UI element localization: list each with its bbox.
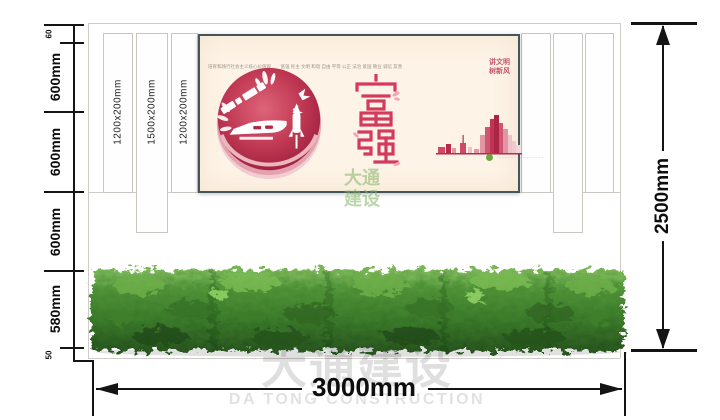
dim-label-60: 60 (45, 30, 54, 39)
watermark-tile: 大通 建设 (344, 168, 380, 210)
wall-top-edge (88, 23, 620, 24)
watermark-tile-line2: 建设 (344, 189, 380, 210)
bottom-dimension-line-right (428, 388, 622, 390)
arrow-left-icon (96, 383, 118, 395)
dim-label-50: 50 (45, 351, 54, 360)
credit-text: ······························· (497, 155, 543, 160)
tick-mark (44, 24, 84, 26)
signage-wall-drawing: 1200x200mm 1500x200mm 1200x200mm 培育和践行社会… (0, 0, 720, 420)
slat-size-label-1: 1200x200mm (113, 79, 124, 145)
credit-dot-icon (486, 154, 493, 161)
left-extension-line (92, 360, 94, 416)
tick-mark (60, 42, 84, 44)
arrow-down-icon (656, 329, 670, 349)
arrow-up-icon (656, 25, 670, 45)
dim-label-3000: 3000mm (312, 372, 416, 403)
bottom-dimension-line-left (96, 388, 302, 390)
slat-right-3 (585, 33, 614, 193)
right-dim-cap-bottom (631, 349, 697, 352)
dim-label-2500: 2500mm (650, 151, 676, 241)
tick-mark (44, 191, 84, 193)
dim-label-580: 580mm (47, 285, 63, 333)
left-dimension-corner (73, 360, 94, 362)
slogan-text: 讲文明 树新风 (489, 58, 510, 76)
watermark-tile-line1: 大通 (344, 168, 380, 189)
slat-right-2 (553, 33, 583, 233)
dim-label-600-1: 600mm (47, 53, 63, 101)
right-extension-line (624, 352, 626, 416)
arrow-right-icon (600, 383, 622, 395)
slat-size-label-3: 1200x200mm (179, 79, 190, 145)
tick-mark (44, 270, 84, 272)
slat-right-1 (521, 33, 551, 193)
slat-size-label-2: 1500x200mm (147, 79, 158, 145)
papercut-emblem-icon (210, 64, 328, 182)
fuqiang-characters (352, 74, 400, 176)
slogan-line-1: 讲文明 (489, 58, 510, 67)
tick-mark (44, 111, 84, 113)
dim-label-600-3: 600mm (47, 208, 63, 256)
hedge-graphic (80, 258, 636, 360)
dim-label-600-2: 600mm (47, 128, 63, 176)
left-dimension-line (73, 25, 75, 361)
slogan-line-2: 树新风 (489, 67, 510, 76)
tick-mark (60, 347, 84, 349)
